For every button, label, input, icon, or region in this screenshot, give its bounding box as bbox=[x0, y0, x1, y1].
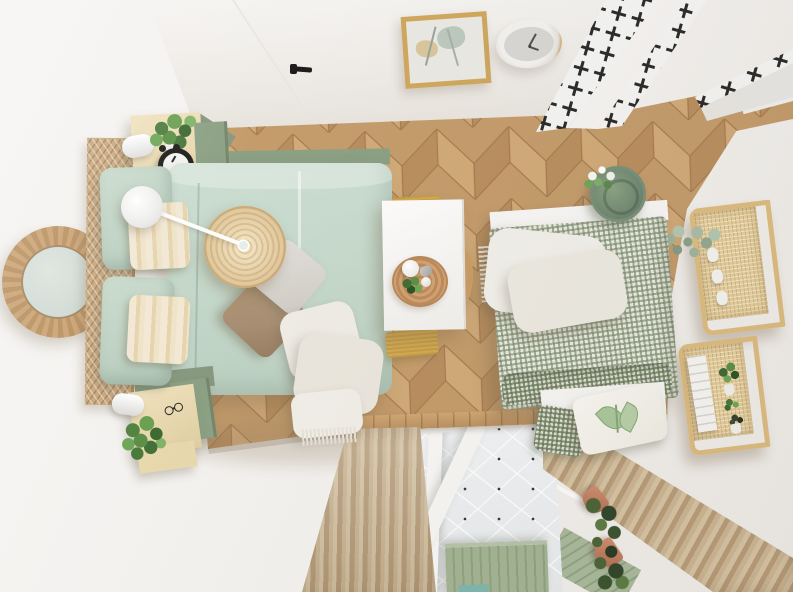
alarm-clock-bell bbox=[173, 144, 180, 151]
framed-botanical-art bbox=[401, 11, 492, 89]
desk-area bbox=[380, 194, 475, 362]
alarm-clock-hand bbox=[171, 156, 176, 163]
planter-flowers bbox=[578, 160, 626, 200]
alarm-clock-bell bbox=[159, 145, 166, 152]
nightstand-bottom bbox=[108, 378, 223, 483]
teal-glimpse bbox=[459, 584, 489, 592]
pendant-center-dot bbox=[239, 241, 248, 250]
tray-plant bbox=[398, 274, 424, 298]
black-door-handle bbox=[290, 62, 314, 78]
white-vase bbox=[716, 290, 729, 305]
bedroom-topdown-render bbox=[0, 0, 793, 592]
daybed bbox=[478, 160, 693, 460]
bed-white-throw bbox=[284, 306, 384, 451]
mirror-glass bbox=[21, 245, 95, 319]
potted-plant bbox=[116, 412, 172, 464]
throw-fringe bbox=[302, 426, 358, 446]
trailing-plant bbox=[566, 496, 644, 592]
duvet-crease bbox=[194, 183, 199, 383]
daybed-white-throw bbox=[484, 226, 634, 346]
white-sphere-lamp bbox=[121, 186, 163, 228]
clock-center-dot bbox=[528, 44, 532, 48]
mustard-runner-bottom bbox=[385, 328, 439, 358]
green-radiator bbox=[445, 540, 549, 592]
duvet-top-roll bbox=[168, 163, 392, 189]
pillow-striped-bottom bbox=[126, 294, 190, 364]
white-vase bbox=[711, 269, 724, 284]
door-handle-bar bbox=[295, 66, 312, 72]
